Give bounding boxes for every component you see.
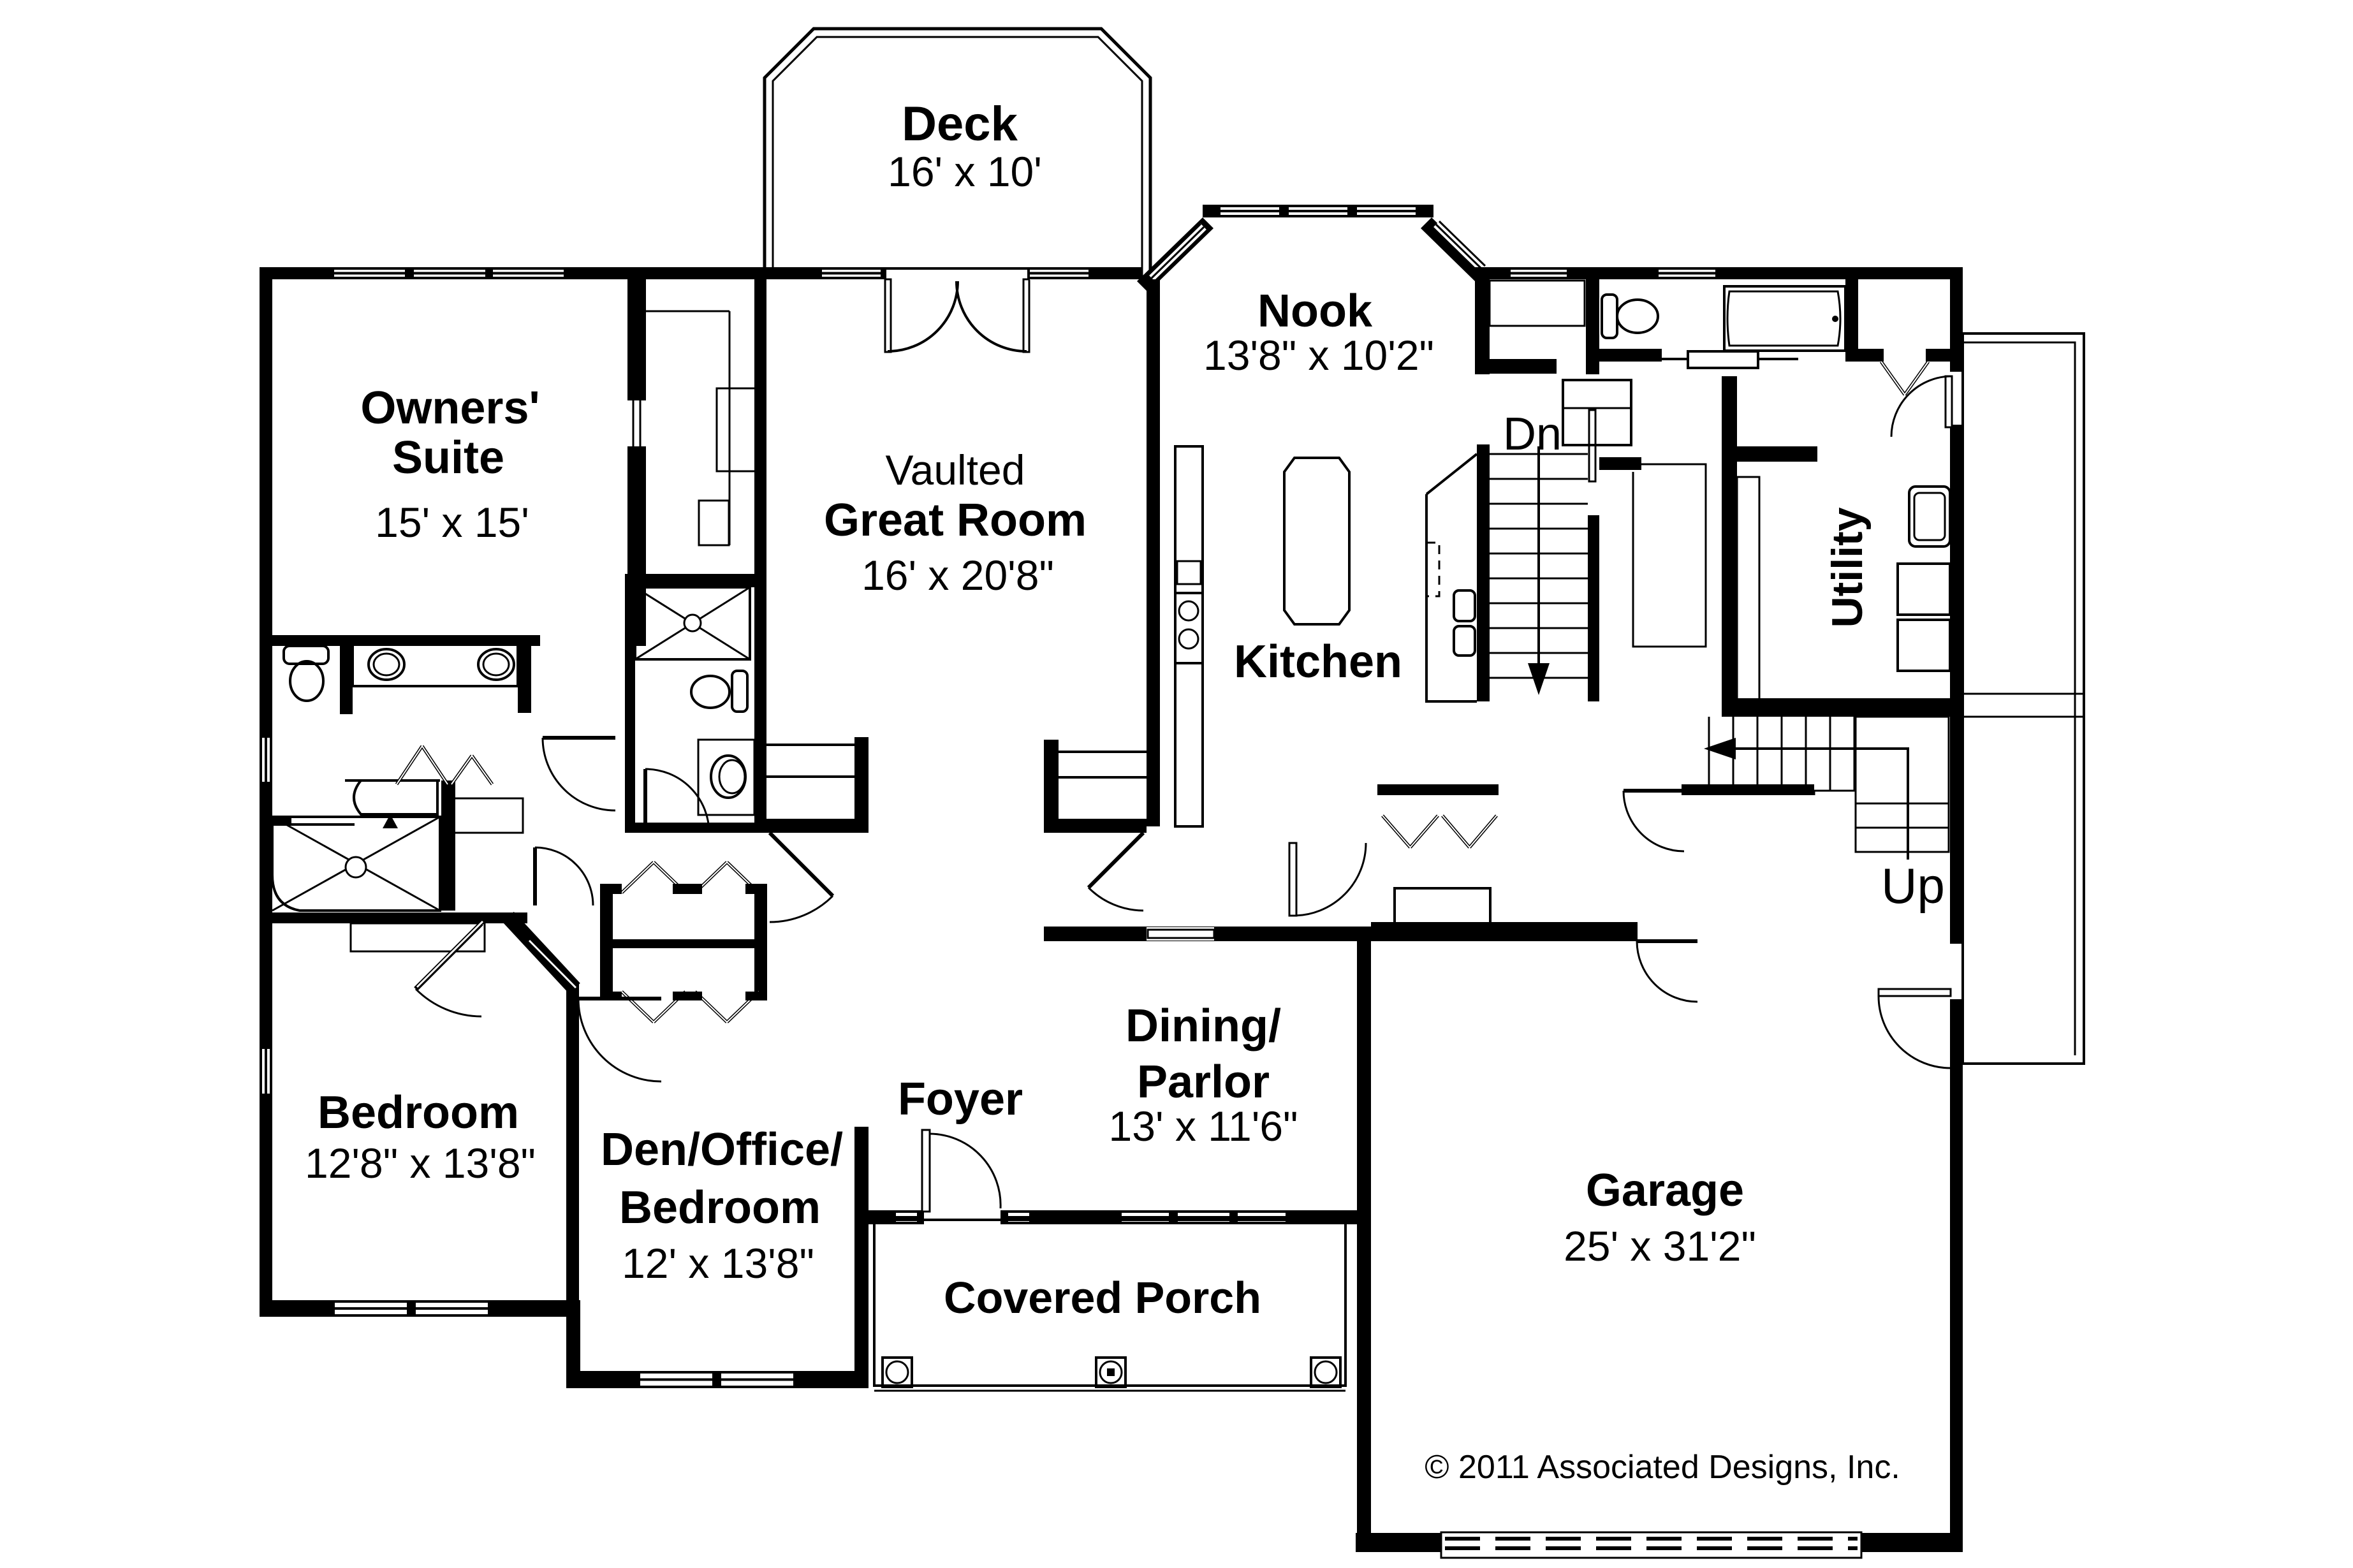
svg-text:Suite: Suite [392, 432, 504, 483]
svg-text:Bedroom: Bedroom [619, 1182, 821, 1233]
svg-text:© 2011 Associated Designs, Inc: © 2011 Associated Designs, Inc. [1425, 1449, 1900, 1486]
svg-text:15' x 15': 15' x 15' [375, 499, 529, 546]
svg-text:Up: Up [1881, 858, 1945, 914]
svg-text:Garage: Garage [1586, 1165, 1744, 1216]
svg-text:Covered Porch: Covered Porch [944, 1273, 1261, 1323]
svg-text:Vaulted: Vaulted [886, 446, 1025, 494]
svg-text:Utility: Utility [1823, 507, 1872, 627]
svg-text:Great Room: Great Room [824, 495, 1087, 546]
svg-text:12'8" x 13'8": 12'8" x 13'8" [305, 1139, 536, 1187]
svg-text:Owners': Owners' [360, 383, 539, 434]
svg-text:Foyer: Foyer [898, 1074, 1023, 1125]
svg-text:16' x 20'8": 16' x 20'8" [861, 552, 1054, 599]
svg-text:Dining/: Dining/ [1125, 1000, 1281, 1051]
svg-text:Parlor: Parlor [1137, 1057, 1270, 1108]
svg-text:Dn: Dn [1503, 409, 1562, 460]
svg-text:25' x 31'2": 25' x 31'2" [1564, 1222, 1756, 1270]
svg-text:13'8" x 10'2": 13'8" x 10'2" [1203, 332, 1434, 379]
svg-text:Deck: Deck [902, 97, 1018, 151]
svg-text:Kitchen: Kitchen [1234, 636, 1402, 687]
svg-text:Nook: Nook [1257, 286, 1373, 337]
svg-text:13' x 11'6": 13' x 11'6" [1109, 1103, 1298, 1150]
svg-text:16' x 10': 16' x 10' [888, 148, 1042, 195]
svg-text:12' x 13'8": 12' x 13'8" [622, 1240, 814, 1287]
svg-text:Den/Office/: Den/Office/ [601, 1124, 843, 1175]
svg-text:Bedroom: Bedroom [318, 1087, 519, 1138]
